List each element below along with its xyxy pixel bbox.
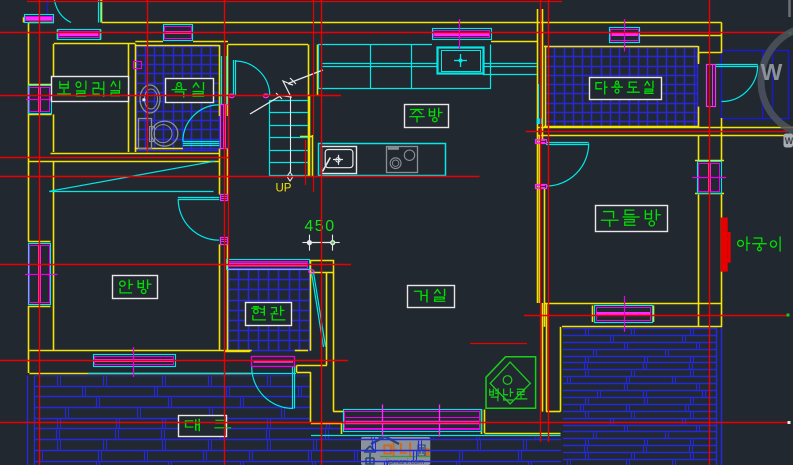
svg-text:W: W bbox=[761, 59, 783, 85]
svg-text:450: 450 bbox=[304, 218, 335, 235]
svg-text:UP: UP bbox=[276, 183, 292, 195]
svg-text:W: W bbox=[785, 136, 793, 146]
